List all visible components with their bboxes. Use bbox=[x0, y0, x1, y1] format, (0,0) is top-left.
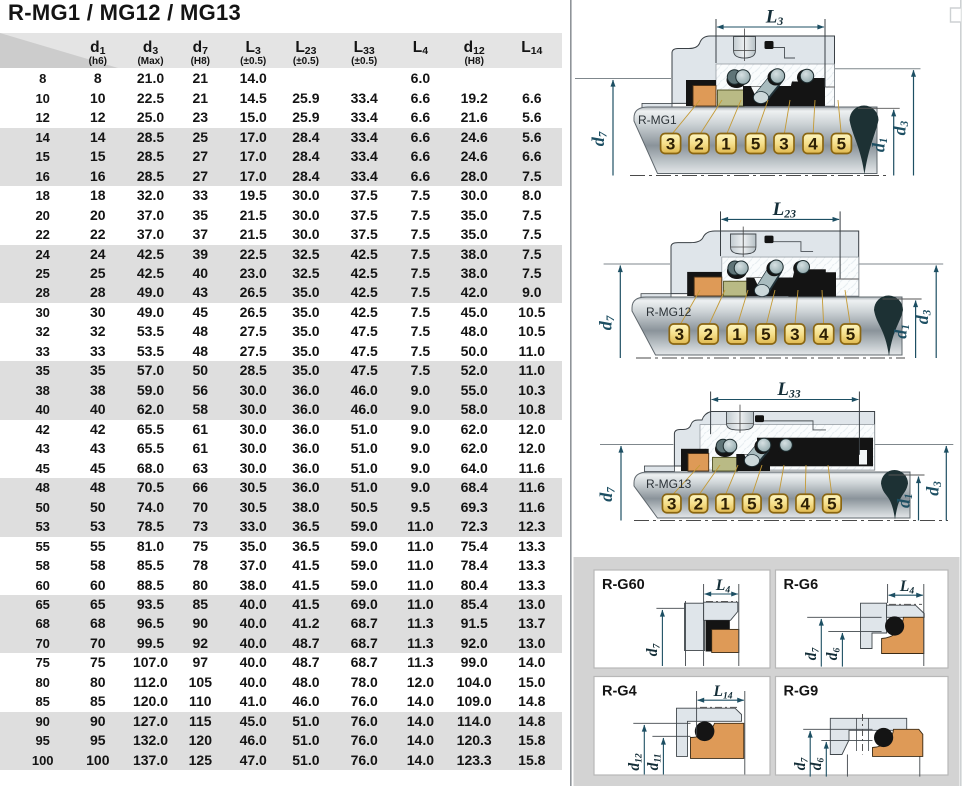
svg-text:5: 5 bbox=[751, 135, 760, 154]
svg-text:4: 4 bbox=[800, 495, 810, 514]
svg-text:R-MG13: R-MG13 bbox=[646, 477, 692, 491]
svg-text:R-MG1: R-MG1 bbox=[638, 113, 677, 127]
svg-text:d7: d7 bbox=[588, 131, 610, 146]
svg-text:5: 5 bbox=[747, 495, 756, 514]
svg-text:1: 1 bbox=[721, 135, 730, 154]
svg-text:1: 1 bbox=[720, 495, 729, 514]
svg-text:3: 3 bbox=[666, 135, 675, 154]
svg-text:R-G9: R-G9 bbox=[784, 684, 819, 700]
svg-text:R-G6: R-G6 bbox=[784, 577, 819, 593]
svg-text:d7: d7 bbox=[595, 315, 617, 330]
svg-text:3: 3 bbox=[790, 325, 799, 344]
svg-text:5: 5 bbox=[827, 495, 836, 514]
svg-text:R-MG12: R-MG12 bbox=[646, 305, 692, 319]
svg-text:4: 4 bbox=[808, 135, 818, 154]
svg-text:1: 1 bbox=[732, 325, 741, 344]
svg-text:d3: d3 bbox=[922, 481, 944, 496]
svg-text:L33: L33 bbox=[776, 379, 800, 401]
svg-text:d3: d3 bbox=[890, 120, 912, 135]
svg-text:3: 3 bbox=[779, 135, 788, 154]
svg-text:R-G60: R-G60 bbox=[602, 577, 645, 593]
svg-text:L23: L23 bbox=[772, 199, 796, 221]
svg-text:2: 2 bbox=[694, 495, 703, 514]
svg-text:3: 3 bbox=[774, 495, 783, 514]
svg-text:5: 5 bbox=[846, 325, 855, 344]
svg-text:5: 5 bbox=[761, 325, 770, 344]
svg-text:3: 3 bbox=[675, 325, 684, 344]
svg-text:4: 4 bbox=[819, 325, 829, 344]
svg-text:3: 3 bbox=[667, 495, 676, 514]
svg-text:5: 5 bbox=[837, 135, 846, 154]
svg-text:R-G4: R-G4 bbox=[602, 684, 637, 700]
svg-text:2: 2 bbox=[694, 135, 703, 154]
svg-text:2: 2 bbox=[703, 325, 712, 344]
svg-text:d7: d7 bbox=[596, 487, 618, 502]
svg-text:L3: L3 bbox=[765, 7, 784, 29]
